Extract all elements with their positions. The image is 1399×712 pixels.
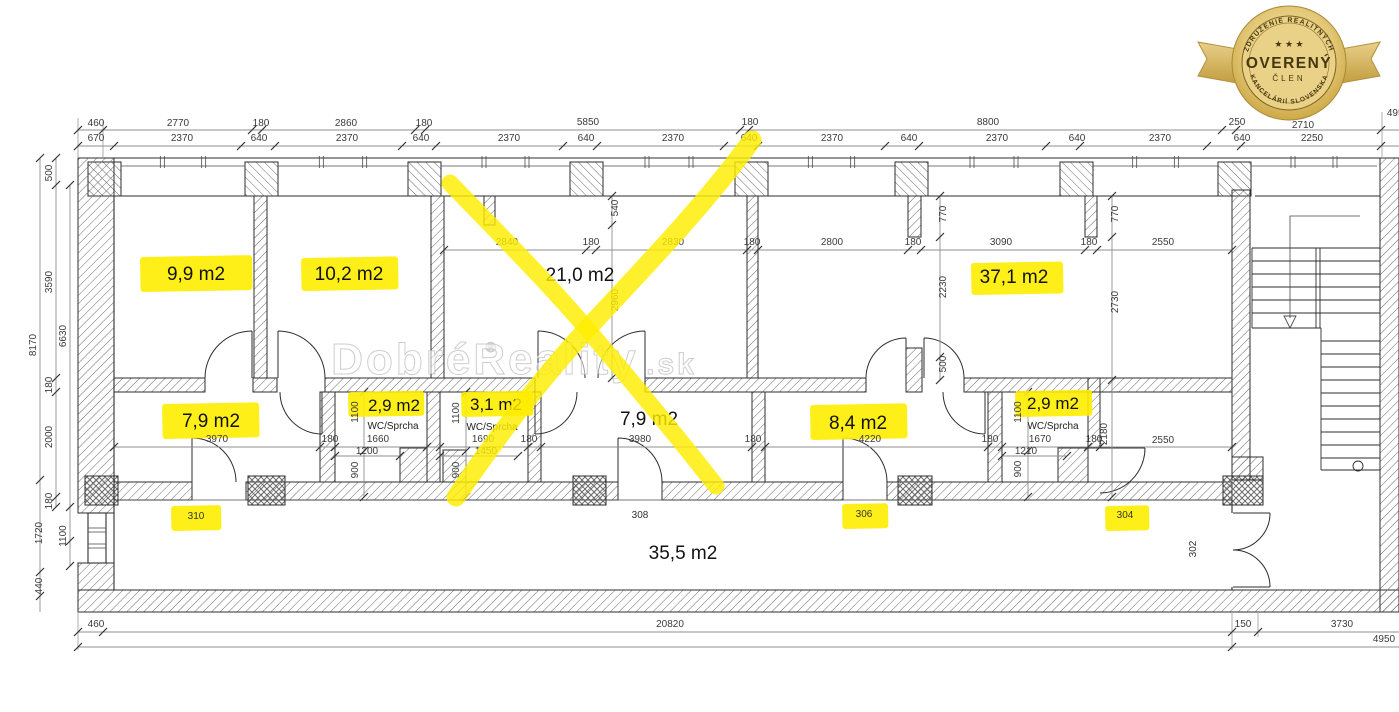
room-area-label: 7,9 m2 xyxy=(182,411,240,432)
dimension-label: 770 xyxy=(938,205,949,222)
structural-lines xyxy=(78,156,1399,590)
dimension-label: 640 xyxy=(251,133,268,144)
verified-badge: ZDRUŽENIE REALITNÝCH ★ ★ ★ OVERENÝ ČLEN … xyxy=(1198,6,1380,120)
pillar xyxy=(895,162,928,196)
dimension-label: 180 xyxy=(1086,434,1103,445)
dimension-label: 5850 xyxy=(577,117,600,128)
dimension-label: 4950 xyxy=(1373,634,1396,645)
pillar xyxy=(573,476,606,505)
dimension-label: 2230 xyxy=(938,275,949,298)
dimension-label: 2770 xyxy=(167,118,190,129)
dimension-label: 180 xyxy=(744,237,761,248)
outer-wall xyxy=(78,158,114,513)
pillar xyxy=(1060,162,1093,196)
dimension-label: 180 xyxy=(44,492,55,509)
room-area-label: 37,1 m2 xyxy=(980,267,1049,288)
dimension-label: 460 xyxy=(88,619,105,630)
outer-wall xyxy=(78,590,1399,612)
pillar xyxy=(570,162,603,196)
dimension-label: 8170 xyxy=(28,333,39,356)
stair-direction-arrow xyxy=(1290,216,1360,318)
dimension-label: 2710 xyxy=(1292,120,1315,131)
dimension-label: 4220 xyxy=(859,434,882,445)
dimension-label: 1670 xyxy=(1029,434,1052,445)
pillar xyxy=(85,476,118,505)
dimension-label: 500 xyxy=(44,164,55,181)
dimension-label: 640 xyxy=(413,133,430,144)
pillar xyxy=(248,476,285,505)
dimension-label: 180 xyxy=(583,237,600,248)
room-area-label: 35,5 m2 xyxy=(649,543,718,564)
pillar xyxy=(898,476,932,505)
marker-stroke xyxy=(456,140,752,497)
dimension-label: 2800 xyxy=(821,237,844,248)
dimension-label: 2370 xyxy=(662,133,685,144)
dimension-label: 1100 xyxy=(58,525,69,547)
shower-stub xyxy=(400,448,427,482)
badge-stars: ★ ★ ★ xyxy=(1274,39,1303,49)
dimension-label: 180 xyxy=(253,118,270,129)
stairwell-wall xyxy=(1232,457,1263,480)
outer-wall xyxy=(1380,158,1399,612)
walls xyxy=(78,158,1399,612)
dimension-label: 180 xyxy=(44,376,55,393)
room-area-label: 9,9 m2 xyxy=(167,264,225,285)
dimension-label: 2370 xyxy=(821,133,844,144)
dimension-label: 440 xyxy=(34,577,45,594)
outer-wall xyxy=(78,563,114,590)
shower-stub xyxy=(1058,448,1088,482)
dimension-label: 2860 xyxy=(335,118,358,129)
dimension-label: 2370 xyxy=(1149,133,1172,144)
dimension-label: 1660 xyxy=(367,434,390,445)
dimension-label: 4950 xyxy=(1387,108,1399,119)
watermark: ® DobréReality .sk xyxy=(331,335,697,384)
corridor-wall xyxy=(114,482,192,500)
room-number: 304 xyxy=(1117,510,1134,521)
dimension-label: 180 xyxy=(416,118,433,129)
staircase xyxy=(1252,216,1380,471)
middle-wall xyxy=(253,378,277,392)
dimension-label: 670 xyxy=(88,133,105,144)
middle-wall xyxy=(114,378,205,392)
dimension-label: 1100 xyxy=(1013,401,1024,423)
dimension-label: 180 xyxy=(322,434,339,445)
dimension-label: 2730 xyxy=(1110,290,1121,313)
dimension-label: 180 xyxy=(982,434,999,445)
dimension-label: 2550 xyxy=(1152,237,1175,248)
stub-wall xyxy=(908,196,921,237)
dimension-label: 770 xyxy=(1110,205,1121,222)
wc-area-label: 2,9 m2 xyxy=(1027,394,1079,413)
dimension-label: 180 xyxy=(521,434,538,445)
dimension-label: 180 xyxy=(905,237,922,248)
room-number: 310 xyxy=(188,511,205,522)
dimension-label: 180 xyxy=(742,117,759,128)
room-area-label: 8,4 m2 xyxy=(829,413,887,434)
dimension-label: 3730 xyxy=(1331,619,1354,630)
wc-sub-label: WC/Sprcha xyxy=(367,421,419,432)
dimension-label: 1200 xyxy=(356,446,379,457)
dimension-label: 2370 xyxy=(171,133,194,144)
dimension-label: 460 xyxy=(88,118,105,129)
dimension-label: 640 xyxy=(1069,133,1086,144)
dimension-label: 180 xyxy=(1081,237,1098,248)
partition-wall xyxy=(254,196,267,378)
wc-sub-label: WC/Sprcha xyxy=(1027,421,1079,432)
dimension-label: 640 xyxy=(901,133,918,144)
corridor-wall xyxy=(662,482,843,500)
dimension-label: 900 xyxy=(350,461,361,478)
dimension-label: 3980 xyxy=(629,434,652,445)
dimension-label: 3090 xyxy=(990,237,1013,248)
dimension-label: 1210 xyxy=(1015,446,1038,457)
pillar xyxy=(245,162,278,196)
corridor-wall xyxy=(887,482,1232,500)
room-number: 308 xyxy=(632,510,649,521)
badge-title: OVERENÝ xyxy=(1246,54,1332,72)
dimension-label: 6630 xyxy=(58,324,69,347)
dimension-label: 250 xyxy=(1229,117,1246,128)
dimension-label: 2370 xyxy=(336,133,359,144)
dimension-label: 180 xyxy=(745,434,762,445)
pillar xyxy=(408,162,441,196)
dimension-label: 640 xyxy=(578,133,595,144)
dimension-label: 2370 xyxy=(498,133,521,144)
room-number: 302 xyxy=(1188,540,1199,557)
room-number: 306 xyxy=(856,509,873,520)
dimension-label: 1100 xyxy=(451,402,462,424)
dimension-label: 150 xyxy=(1235,619,1252,630)
room-area-label: 10,2 m2 xyxy=(315,264,384,285)
corridor-wall xyxy=(246,482,618,500)
badge-member: ČLEN xyxy=(1272,74,1305,83)
partition-wall xyxy=(747,196,758,378)
floor-plan-canvas: 9,9 m210,2 m221,0 m237,1 m27,9 m27,9 m28… xyxy=(0,0,1399,712)
dimension-label: 3970 xyxy=(206,434,229,445)
dimension-label: 2000 xyxy=(44,425,55,448)
dimension-label: 1100 xyxy=(350,401,361,423)
watermark-tld: .sk xyxy=(646,348,697,381)
partition-wall xyxy=(427,392,440,482)
dimension-label: 8800 xyxy=(977,117,1000,128)
stub-wall xyxy=(1085,196,1097,237)
dimension-label: 500 xyxy=(938,355,949,372)
dimension-label: 2250 xyxy=(1301,133,1324,144)
dimension-label: 900 xyxy=(1013,460,1024,477)
dimension-label: 540 xyxy=(610,199,621,216)
dimension-label: 3590 xyxy=(44,270,55,293)
wc-area-label: 2,9 m2 xyxy=(368,396,420,415)
column-marker xyxy=(1353,461,1363,471)
dimension-label: 640 xyxy=(1234,133,1251,144)
dimension-label: 20820 xyxy=(656,619,684,630)
stub-wall xyxy=(906,348,922,392)
dimension-label: 2370 xyxy=(986,133,1009,144)
stairwell-wall xyxy=(1232,190,1250,480)
dimension-label: 1720 xyxy=(34,521,45,544)
dimension-label: 2550 xyxy=(1152,435,1175,446)
